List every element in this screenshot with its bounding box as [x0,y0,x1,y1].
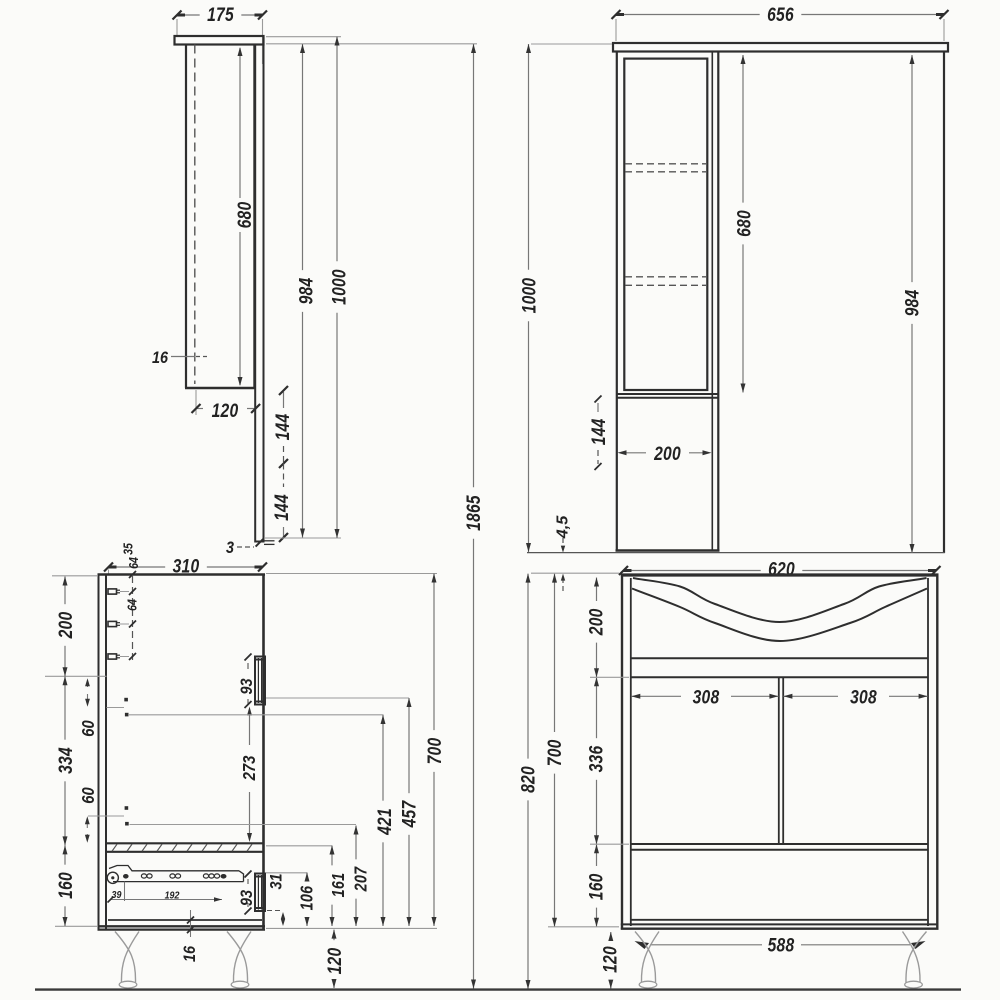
svg-text:421: 421 [375,808,396,836]
svg-text:144: 144 [273,413,294,440]
svg-text:200: 200 [56,611,77,639]
svg-text:144: 144 [272,494,293,521]
svg-text:161: 161 [328,873,348,898]
svg-text:620: 620 [768,560,795,581]
svg-text:308: 308 [693,688,720,709]
svg-text:1000: 1000 [519,278,540,314]
svg-text:160: 160 [56,872,77,899]
svg-text:93: 93 [237,890,256,906]
svg-text:106: 106 [296,886,316,911]
svg-text:656: 656 [767,5,794,26]
svg-text:680: 680 [235,201,256,228]
svg-text:3: 3 [226,538,234,557]
svg-text:64: 64 [125,599,139,611]
svg-text:60: 60 [78,787,98,804]
svg-text:120: 120 [325,947,346,974]
svg-text:35: 35 [122,542,136,555]
svg-text:60: 60 [78,720,98,737]
svg-text:273: 273 [239,755,259,781]
svg-text:120: 120 [601,946,622,973]
svg-text:192: 192 [165,890,180,902]
svg-text:16: 16 [152,348,168,367]
svg-text:308: 308 [850,688,877,709]
svg-text:207: 207 [350,866,370,892]
svg-text:31: 31 [266,874,285,890]
svg-text:984: 984 [296,277,317,304]
svg-text:16: 16 [180,946,199,962]
svg-text:200: 200 [587,608,608,636]
svg-text:4,5: 4,5 [555,515,572,540]
svg-text:588: 588 [768,936,795,957]
svg-text:336: 336 [587,745,608,772]
svg-text:120: 120 [212,401,239,422]
svg-text:64: 64 [127,557,141,569]
svg-text:984: 984 [903,289,924,316]
svg-text:144: 144 [589,418,610,445]
svg-text:700: 700 [425,737,446,764]
svg-text:160: 160 [587,873,608,900]
svg-text:200: 200 [653,444,681,465]
svg-text:334: 334 [56,747,77,774]
svg-text:700: 700 [545,739,566,766]
svg-text:1000: 1000 [329,269,350,305]
svg-text:93: 93 [237,678,256,694]
svg-text:680: 680 [734,210,755,237]
svg-text:457: 457 [400,800,421,829]
svg-text:1865: 1865 [464,495,485,531]
svg-text:820: 820 [518,766,539,793]
svg-text:175: 175 [207,5,234,26]
svg-text:39: 39 [112,889,122,901]
